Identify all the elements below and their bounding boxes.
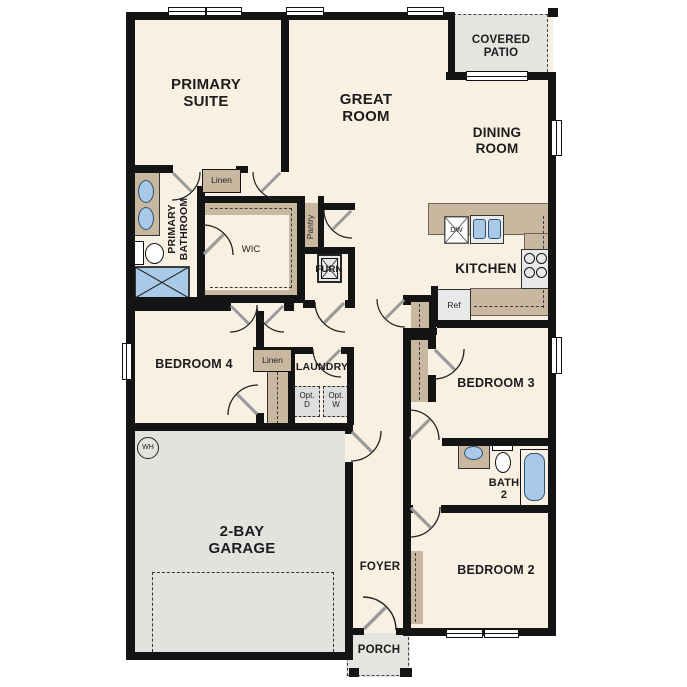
wall <box>126 423 350 431</box>
room-label-porch: PORCH <box>349 643 409 658</box>
wall <box>348 253 355 307</box>
appliance-label-opt-washer: Opt. W <box>323 388 349 414</box>
door <box>257 305 284 332</box>
room-label-great-room: GREAT ROOM <box>316 91 416 127</box>
door <box>228 385 258 415</box>
bedroom2-closet-rod-dashed <box>415 553 416 622</box>
room-label-primary-suite: PRIMARY SUITE <box>146 77 266 111</box>
window <box>168 7 206 16</box>
appliance-label-refrigerator: Ref <box>437 300 471 312</box>
wall <box>135 165 173 173</box>
wall <box>126 652 350 660</box>
window <box>446 629 483 638</box>
room-label-garage: 2-BAY GARAGE <box>182 524 302 558</box>
room-label-bath2: BATH 2 <box>474 475 534 503</box>
appliance-label-dishwasher: DW <box>444 224 469 236</box>
bath2-sink-icon <box>464 446 483 460</box>
kitchen-sink-basin-icon <box>488 219 501 239</box>
window <box>206 7 242 16</box>
kitchen-counter-bottom <box>470 288 550 316</box>
closet-label-pantry: Pantry <box>305 206 317 248</box>
window <box>286 7 324 16</box>
door <box>351 431 381 461</box>
wall <box>303 300 315 308</box>
wall <box>428 340 436 349</box>
door <box>409 410 439 440</box>
toilet-bowl-icon <box>145 243 164 264</box>
vanity-sink-icon <box>138 207 154 230</box>
vanity-sink-icon <box>138 180 154 203</box>
room-label-wic: WIC <box>226 243 276 258</box>
wall <box>437 320 556 328</box>
room-label-bedroom4: BEDROOM 4 <box>134 355 254 372</box>
toilet-tank-icon <box>134 241 144 265</box>
window <box>551 337 562 374</box>
wall <box>203 295 305 303</box>
room-label-dining-room: DINING ROOM <box>447 126 547 155</box>
window <box>484 629 519 638</box>
kitchen-sink-basin-icon <box>473 219 486 239</box>
wall <box>548 8 558 17</box>
bedroom3-closet-rod-dashed <box>419 342 420 400</box>
wall <box>318 203 355 210</box>
door <box>324 210 352 238</box>
wall <box>442 438 556 446</box>
room-label-laundry: LAUNDRY <box>288 361 356 375</box>
door <box>377 299 405 327</box>
wall <box>345 300 355 308</box>
hall-closet-shelf <box>267 370 290 428</box>
room-label-bedroom2: BEDROOM 2 <box>436 561 556 578</box>
closet-label-linen-hall: Linen <box>253 349 292 372</box>
wall <box>281 12 289 172</box>
window <box>122 343 132 380</box>
bedroom2-closet-shelf <box>409 551 423 624</box>
window <box>407 7 444 16</box>
room-label-foyer: FOYER <box>350 560 410 575</box>
room-label-covered-patio: COVERED PATIO <box>451 33 551 60</box>
closet-label-linen-upper: Linen <box>202 169 241 193</box>
wall <box>284 303 294 311</box>
door <box>253 172 281 200</box>
toilet-bowl-icon <box>495 452 511 473</box>
porch-post <box>400 668 412 677</box>
room-label-bedroom3: BEDROOM 3 <box>436 374 556 391</box>
appliance-label-water-heater: WH <box>137 442 159 454</box>
wall <box>441 505 556 513</box>
upper-cabinet-dashed-h <box>474 306 544 307</box>
wall <box>126 12 135 660</box>
door <box>230 305 257 332</box>
room-label-primary-bathroom: PRIMARY BATHROOM <box>165 173 193 285</box>
porch-post <box>349 668 359 677</box>
hall-closet-rod-dashed <box>277 372 278 424</box>
appliance-label-furnace: FURN <box>311 264 347 276</box>
door <box>410 507 440 537</box>
appliance-label-opt-dryer: Opt. D <box>294 388 320 414</box>
wall <box>403 333 411 628</box>
garage-door-dashed-outline <box>152 572 334 652</box>
wall <box>403 328 437 335</box>
room-label-kitchen: KITCHEN <box>426 260 546 277</box>
entry-door <box>363 597 396 630</box>
wall <box>345 628 364 635</box>
wall <box>396 628 411 635</box>
window <box>551 120 562 156</box>
floor-plan: PRIMARY SUITE GREAT ROOM COVERED PATIO D… <box>0 0 687 687</box>
door <box>315 302 345 332</box>
sliding-door <box>466 71 528 81</box>
wall <box>135 303 231 311</box>
